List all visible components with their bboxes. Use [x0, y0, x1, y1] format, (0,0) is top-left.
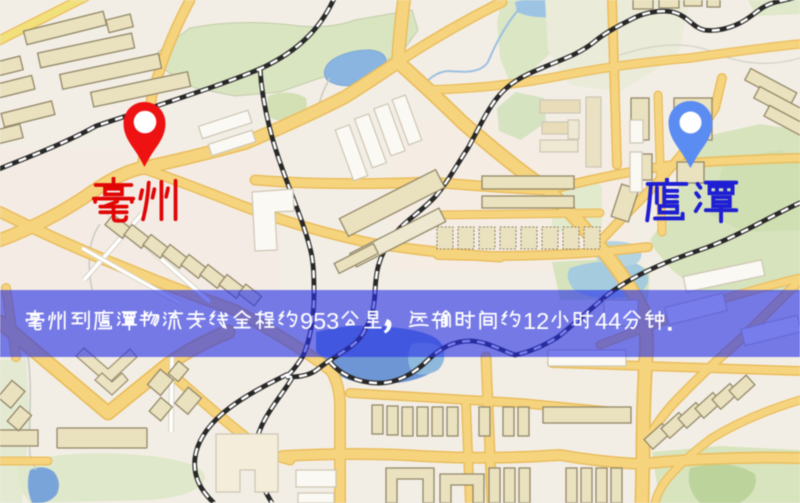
svg-text:44: 44 — [595, 308, 621, 334]
svg-text:953: 953 — [300, 308, 339, 334]
svg-text:12: 12 — [523, 308, 549, 334]
